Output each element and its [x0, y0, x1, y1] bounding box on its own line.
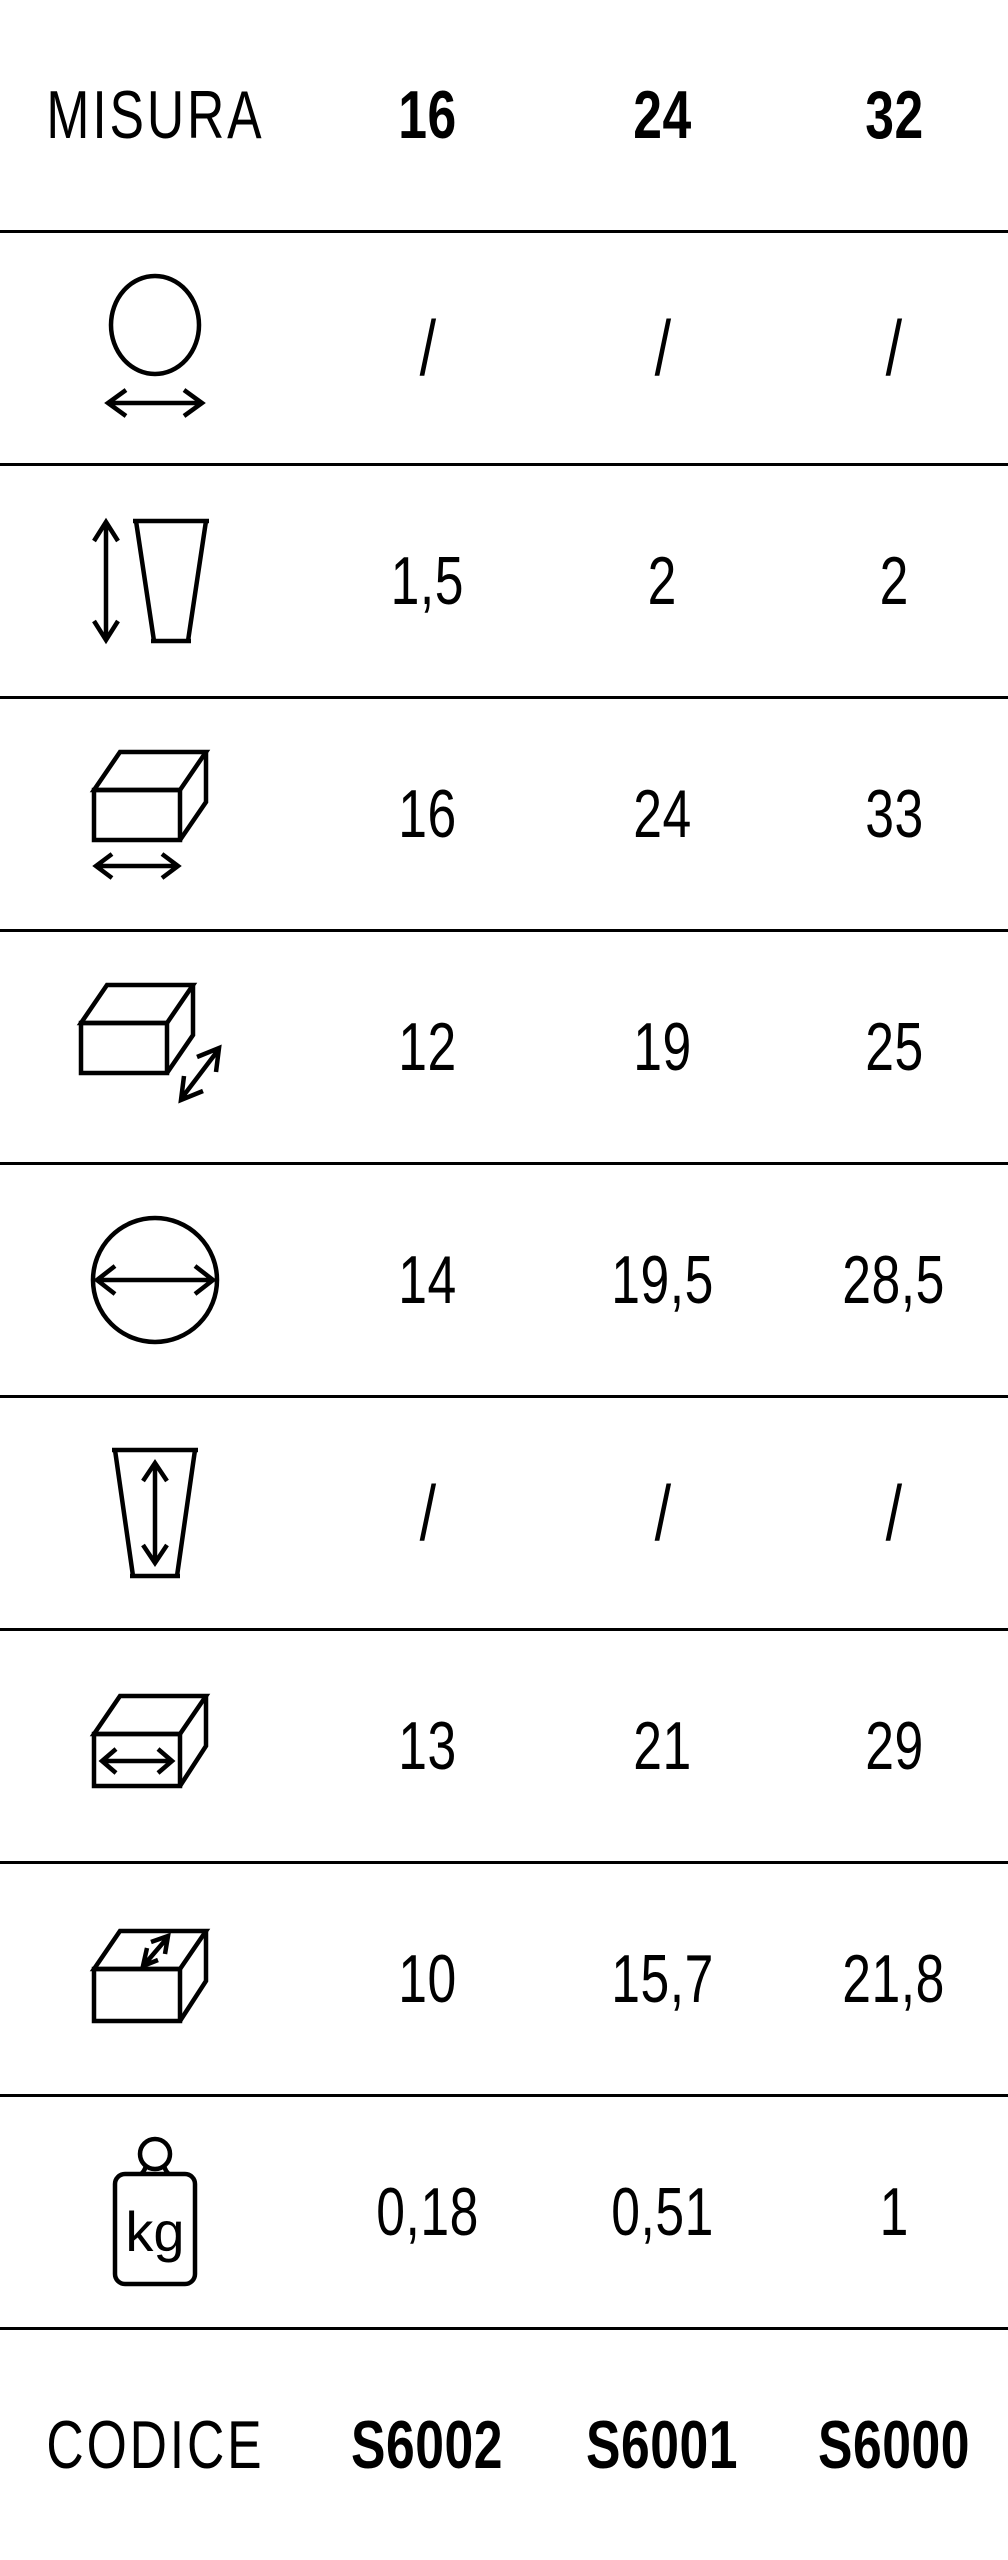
row-value-cell: 0,18 [310, 2097, 545, 2327]
row-icon-cell [0, 233, 310, 463]
header-label-cell: MISURA [0, 0, 310, 230]
value: 29 [865, 1712, 924, 1780]
row-value-cell: 12 [310, 932, 545, 1162]
table-row: 132129 [0, 1628, 1008, 1861]
row-value-cell: 15,7 [545, 1864, 780, 2094]
footer-code-cell: S6002 [310, 2330, 545, 2560]
row-value-cell: 2 [545, 466, 780, 696]
table-row: /// [0, 1395, 1008, 1628]
row-value-cell: 16 [310, 699, 545, 929]
row-value-cell: / [545, 233, 780, 463]
row-icon-cell [0, 699, 310, 929]
row-value-cell: 33 [780, 699, 1008, 929]
header-size-16: 16 [398, 81, 457, 149]
footer-label: CODICE [46, 2411, 264, 2479]
value: 10 [398, 1945, 457, 2013]
value: 14 [398, 1246, 457, 1314]
circle-diameter-icon [85, 1210, 225, 1350]
box-depth-arrow-icon [75, 977, 235, 1117]
row-value-cell: / [780, 1398, 1008, 1628]
value: 15,7 [611, 1945, 714, 2013]
value: 0,51 [611, 2178, 714, 2246]
slab-width-arrow-icon [88, 1690, 222, 1802]
row-value-cell: 21 [545, 1631, 780, 1861]
value-none: / [419, 309, 435, 387]
row-icon-cell [0, 466, 310, 696]
row-value-cell: 25 [780, 932, 1008, 1162]
row-icon-cell [0, 1398, 310, 1628]
header-size-cell: 32 [780, 0, 1008, 230]
value: 16 [398, 780, 457, 848]
header-size-cell: 24 [545, 0, 780, 230]
row-value-cell: 14 [310, 1165, 545, 1395]
header-label: MISURA [46, 81, 264, 149]
value-none: / [654, 1474, 670, 1552]
row-value-cell: / [310, 1398, 545, 1628]
value-none: / [654, 309, 670, 387]
table-row: /// [0, 230, 1008, 463]
value: 2 [648, 547, 677, 615]
row-icon-cell [0, 1631, 310, 1861]
row-value-cell: 10 [310, 1864, 545, 2094]
value: 24 [633, 780, 692, 848]
value: 21,8 [843, 1945, 946, 2013]
value: 2 [879, 547, 908, 615]
value-none: / [419, 1474, 435, 1552]
footer-code-cell: S6000 [780, 2330, 1008, 2560]
row-value-cell: 0,51 [545, 2097, 780, 2327]
row-value-cell: 19,5 [545, 1165, 780, 1395]
row-icon-cell [0, 1165, 310, 1395]
row-icon-cell [0, 1864, 310, 2094]
value: 33 [865, 780, 924, 848]
value: 19 [633, 1013, 692, 1081]
value: 13 [398, 1712, 457, 1780]
header-size-cell: 16 [310, 0, 545, 230]
table-row: 1,522 [0, 463, 1008, 696]
code-s6000: S6000 [818, 2411, 970, 2479]
weight-kg-icon: kg [107, 2134, 203, 2290]
value: 25 [865, 1013, 924, 1081]
slab-depth-arrow-icon [88, 1921, 222, 2037]
header-row: MISURA 16 24 32 [0, 0, 1008, 230]
value-none: / [886, 309, 902, 387]
header-size-24: 24 [633, 81, 692, 149]
table-row: 162433 [0, 696, 1008, 929]
code-s6001: S6001 [586, 2411, 738, 2479]
row-value-cell: 29 [780, 1631, 1008, 1861]
value: 19,5 [611, 1246, 714, 1314]
header-size-32: 32 [865, 81, 924, 149]
row-value-cell: / [545, 1398, 780, 1628]
footer-label-cell: CODICE [0, 2330, 310, 2560]
footer-code-cell: S6001 [545, 2330, 780, 2560]
value: 1 [879, 2178, 908, 2246]
height-arrow-taper-icon [84, 513, 226, 649]
row-icon-cell [0, 932, 310, 1162]
taper-height-arrow-icon [99, 1442, 211, 1584]
value: 1,5 [391, 547, 464, 615]
value: 28,5 [843, 1246, 946, 1314]
table-row: 121925 [0, 929, 1008, 1162]
value-none: / [886, 1474, 902, 1552]
row-value-cell: / [780, 233, 1008, 463]
spec-table: MISURA 16 24 32 ///1,5221624331219251419… [0, 0, 1008, 2560]
row-value-cell: 24 [545, 699, 780, 929]
row-value-cell: / [310, 233, 545, 463]
value: 21 [633, 1712, 692, 1780]
footer-row: CODICE S6002 S6001 S6000 [0, 2327, 1008, 2560]
row-value-cell: 13 [310, 1631, 545, 1861]
value: 12 [398, 1013, 457, 1081]
data-rows: ///1,5221624331219251419,528,5///1321291… [0, 230, 1008, 2327]
row-value-cell: 1 [780, 2097, 1008, 2327]
svg-text:kg: kg [125, 2200, 184, 2263]
row-value-cell: 21,8 [780, 1864, 1008, 2094]
row-value-cell: 19 [545, 932, 780, 1162]
row-value-cell: 2 [780, 466, 1008, 696]
table-row: 1419,528,5 [0, 1162, 1008, 1395]
code-s6002: S6002 [351, 2411, 503, 2479]
box-width-arrow-icon [88, 744, 222, 884]
row-value-cell: 28,5 [780, 1165, 1008, 1395]
row-icon-cell: kg [0, 2097, 310, 2327]
table-row: 1015,721,8 [0, 1861, 1008, 2094]
row-value-cell: 1,5 [310, 466, 545, 696]
ball-width-arrow-icon [99, 272, 211, 424]
table-row: kg0,180,511 [0, 2094, 1008, 2327]
value: 0,18 [376, 2178, 479, 2246]
